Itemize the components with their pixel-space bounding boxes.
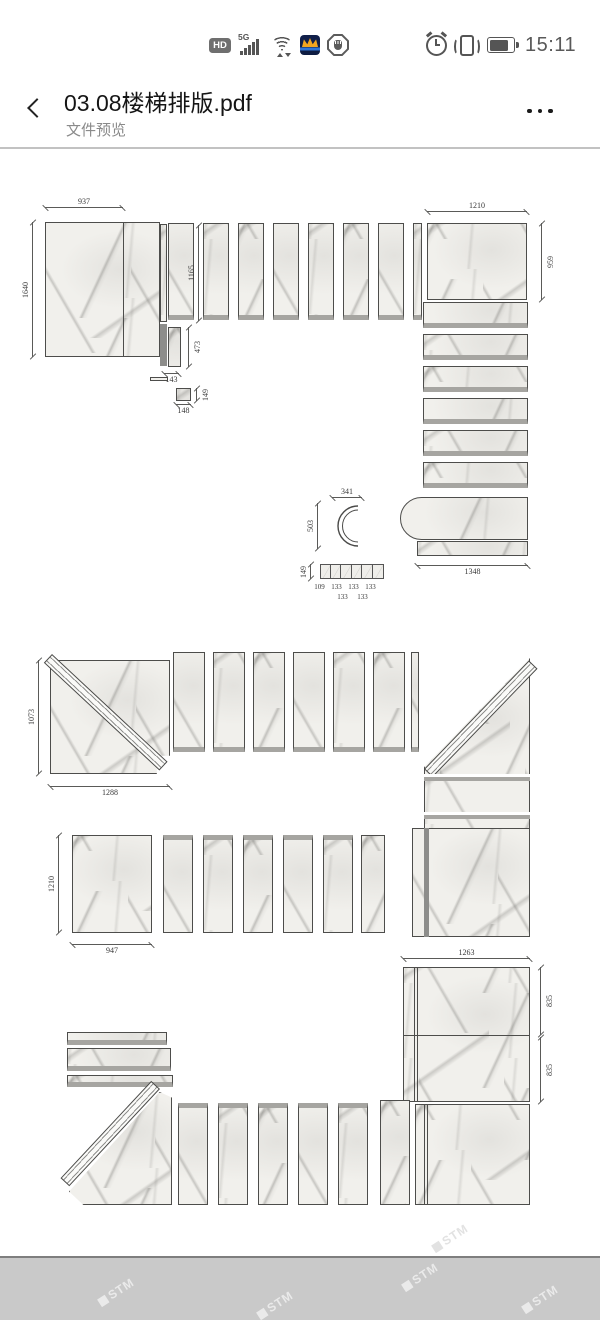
side-slab	[412, 828, 530, 937]
bottom-strip	[417, 541, 528, 556]
tread-shadow	[424, 815, 530, 819]
dimension-1263: 1263	[403, 958, 530, 959]
strip-width-labels-row2: 133 133	[336, 593, 369, 601]
stair-tread	[378, 223, 404, 320]
slab-joint-line	[123, 223, 124, 356]
stair-tread	[423, 302, 528, 328]
watermark-logo-icon	[431, 1240, 443, 1252]
stair-tread	[243, 835, 273, 933]
dimension-1288: 1288	[50, 786, 170, 787]
status-right-icons: 15:11	[426, 33, 576, 57]
back-button[interactable]	[22, 94, 50, 122]
status-left-icons: HD 5G	[209, 33, 349, 57]
strip-width-labels-row1: 109 133 133 133	[313, 583, 377, 591]
stair-tread	[203, 835, 233, 933]
stair-tread	[163, 835, 193, 933]
stair-tread	[323, 835, 353, 933]
slab-joint-line	[404, 1035, 529, 1036]
landing-slab	[72, 835, 152, 933]
dimension-1640: 1640	[32, 222, 33, 357]
stair-tread	[423, 366, 528, 392]
tread-shadow	[424, 777, 530, 781]
stair-tread	[380, 1100, 410, 1205]
stair-tread	[308, 223, 334, 320]
thin-bar	[150, 377, 168, 381]
wifi-icon	[271, 35, 293, 55]
dimension-143: 143	[164, 373, 179, 374]
stair-tread	[411, 652, 419, 752]
stair-tread	[258, 1103, 288, 1205]
small-piece	[168, 327, 181, 367]
dimension-473: 473	[188, 327, 189, 367]
stair-tread	[338, 1103, 368, 1205]
slab-joint-line	[424, 1105, 425, 1204]
phone-screen: HD 5G 15:11 03.08楼梯排版.pdf 文件预览	[0, 0, 600, 1320]
bullnose-step	[400, 497, 528, 540]
pdf-preview-canvas[interactable]: 937 1640 1165 473 143 149 1	[0, 149, 600, 1320]
app-notification-icon	[300, 35, 320, 55]
stair-tread	[253, 652, 285, 752]
small-square-tile	[176, 388, 191, 401]
dimension-835-b: 835	[540, 1037, 541, 1102]
stair-tread	[273, 223, 299, 320]
stair-tread	[333, 652, 365, 752]
slab-shadow-joint	[424, 828, 429, 937]
stair-tread	[423, 462, 528, 488]
file-subtitle: 文件预览	[66, 119, 126, 140]
do-not-disturb-icon	[327, 34, 349, 56]
stair-tread	[343, 223, 369, 320]
dimension-1210: 1210	[58, 835, 59, 933]
dimension-149-strip: 149	[310, 564, 311, 579]
stair-tread	[423, 398, 528, 424]
stair-tread	[218, 1103, 248, 1205]
dimension-947: 947	[72, 944, 152, 945]
stair-tread	[298, 1103, 328, 1205]
stair-tread	[213, 652, 245, 752]
dimension-937: 937	[45, 207, 123, 208]
dimension-1348: 1348	[417, 565, 528, 566]
slab-joint-line	[427, 1105, 428, 1204]
lower-landing-slab	[415, 1104, 530, 1205]
stair-tread	[67, 1048, 171, 1071]
dimension-149: 149	[196, 388, 197, 401]
dimension-148: 148	[176, 404, 191, 405]
stair-tread	[173, 652, 205, 752]
edge-shadow-strip	[160, 324, 167, 366]
stair-tread	[361, 835, 385, 933]
stair-tread	[293, 652, 325, 752]
battery-icon	[487, 37, 515, 53]
riser-tile-strip	[320, 564, 384, 579]
corner-landing-slab	[69, 1092, 172, 1205]
landing-slab	[45, 222, 160, 357]
watermark: STM	[429, 1221, 470, 1255]
stair-tread	[413, 223, 422, 320]
more-menu-button[interactable]	[527, 100, 571, 122]
dimension-1165: 1165	[198, 225, 199, 321]
stair-tread	[67, 1075, 173, 1087]
clock-time: 15:11	[525, 34, 576, 57]
signal-strength-icon: 5G	[238, 33, 264, 57]
alarm-icon	[426, 35, 447, 56]
edge-strip	[160, 224, 167, 322]
dimension-1073: 1073	[38, 660, 39, 774]
dimension-341: 341	[332, 497, 362, 498]
curved-trim-piece	[332, 503, 362, 549]
stair-tread	[423, 430, 528, 456]
hd-badge: HD	[209, 38, 231, 53]
stair-tread	[238, 223, 264, 320]
stair-tread	[67, 1032, 167, 1045]
vibrate-icon	[460, 35, 474, 56]
dimension-1210: 1210	[427, 211, 527, 212]
dimension-835-a: 835	[540, 967, 541, 1035]
right-landing-slab	[427, 223, 527, 300]
stair-tread	[283, 835, 313, 933]
document-end-area	[0, 1256, 600, 1320]
stair-tread	[178, 1103, 208, 1205]
dimension-503: 503	[317, 503, 318, 549]
stair-tread	[203, 223, 229, 320]
file-title: 03.08楼梯排版.pdf	[64, 84, 504, 118]
dimension-959: 959	[541, 223, 542, 300]
stair-tread	[373, 652, 405, 752]
chevron-left-icon	[27, 98, 47, 118]
stair-tread	[423, 334, 528, 360]
